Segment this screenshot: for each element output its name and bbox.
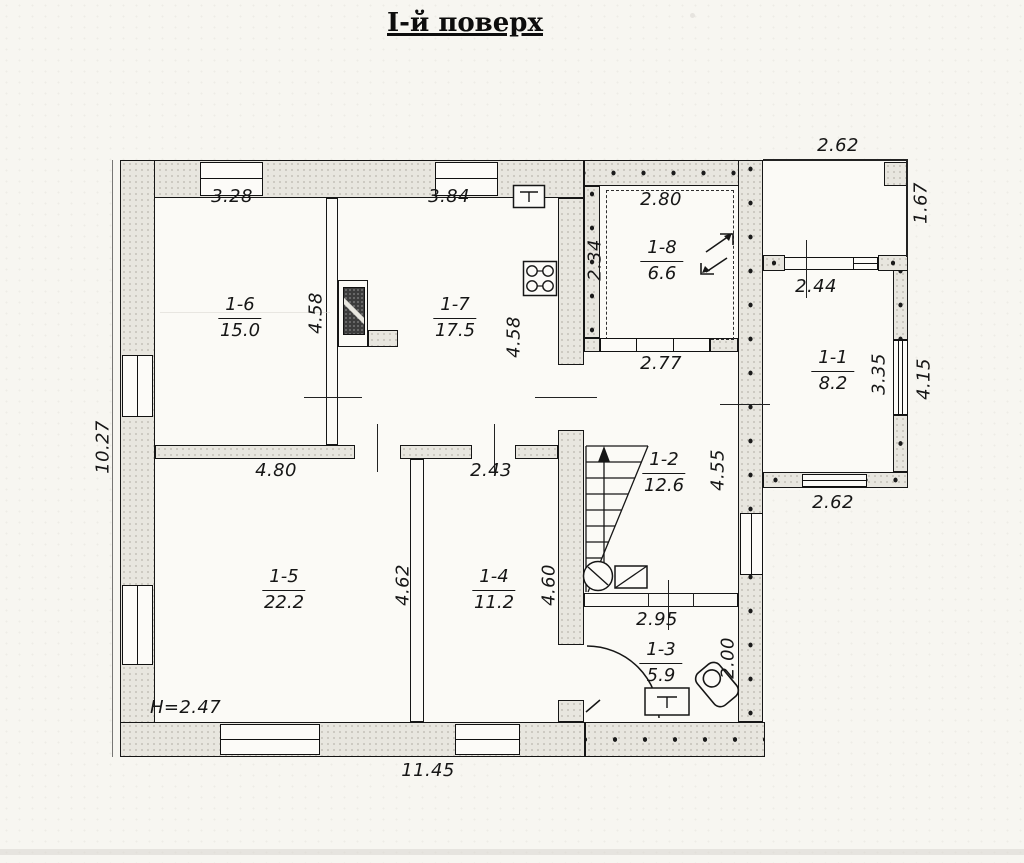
dim-label-room16-depth: 4.58	[306, 292, 327, 334]
partition-hall-bath	[584, 593, 738, 607]
wall-hall-upper	[558, 198, 584, 365]
dim-label-room14-width: 2.43	[470, 460, 512, 481]
ceiling-height-note: H=2.47	[150, 697, 221, 718]
wall-porch-bottom-b	[710, 338, 738, 352]
room-id: 1-4	[472, 566, 515, 591]
dim-label-bottom-total: 11.45	[401, 760, 455, 781]
window-bottom-room14	[455, 724, 520, 755]
window-bottom-room15	[220, 724, 320, 755]
dim-label-top-room17: 3.84	[428, 186, 470, 207]
room-area: 22.2	[262, 591, 305, 615]
room-area: 15.0	[218, 319, 261, 343]
room-area: 12.6	[642, 474, 685, 498]
room-id: 1-7	[433, 294, 476, 319]
wall-room11-right-a	[893, 270, 908, 340]
scan-band	[0, 849, 1024, 855]
room-area: 6.6	[640, 262, 683, 286]
room-label-1-7: 1-7 17.5	[433, 294, 476, 342]
dim-label-bath-depth: 2.00	[718, 637, 739, 679]
window-room11-bottom	[802, 474, 867, 487]
dim-label-room14-depth: 4.60	[539, 564, 560, 606]
dim-label-room17-depth: 4.58	[504, 316, 525, 358]
room-label-1-3: 1-3 5.9	[639, 639, 682, 687]
dim-label-top-room16: 3.28	[211, 186, 253, 207]
terrace-right-line	[906, 159, 908, 257]
terrace-top-line	[763, 159, 908, 161]
partition-divider	[648, 593, 649, 607]
wall-porch-bottom-a	[584, 338, 600, 352]
wall-room11-right-b	[893, 415, 908, 472]
room-label-1-5: 1-5 22.2	[262, 566, 305, 614]
dim-label-room11-door: 2.44	[795, 276, 837, 297]
wall-room11-top-a	[763, 255, 785, 271]
dim-label-room15-depth: 4.62	[393, 564, 414, 606]
tick-partition	[304, 397, 362, 398]
scan-speck	[690, 13, 695, 18]
chimney-flue	[343, 287, 365, 335]
wall-bottom-right	[585, 722, 765, 757]
dim-label-room11-bottom: 2.62	[812, 492, 854, 513]
partition-divider	[693, 593, 694, 607]
dim-label-room18-width: 2.80	[640, 189, 682, 210]
chimney-stub-wall	[368, 330, 398, 347]
tick-hall-door	[535, 397, 597, 398]
dim-label-hall-depth: 4.55	[708, 449, 729, 491]
dim-label-room11-depth-outer: 4.15	[914, 358, 935, 400]
partition-room16-17	[326, 198, 338, 445]
window-room11-right	[893, 340, 908, 415]
sink-icon	[512, 184, 546, 209]
window-room11-top	[853, 257, 878, 270]
wall-top-porch	[584, 160, 763, 186]
room-id: 1-3	[639, 639, 682, 664]
dim-label-room18-depth: 2.34	[585, 239, 606, 281]
room-id: 1-1	[811, 347, 854, 372]
equipment-box-icon	[613, 564, 649, 590]
floor-plan-page: І-й поверх	[0, 0, 1024, 863]
room-label-1-4: 1-4 11.2	[472, 566, 515, 614]
room-id: 1-8	[640, 237, 683, 262]
tick-right-wall	[720, 404, 770, 405]
wall-mid-c	[515, 445, 558, 459]
room-area: 11.2	[472, 591, 515, 615]
stove-icon	[522, 260, 558, 297]
dim-label-left-total: 10.27	[93, 420, 114, 474]
door-opening-room11	[785, 257, 853, 270]
wall-room11-top-b	[878, 255, 908, 271]
room-id: 1-6	[218, 294, 261, 319]
room-label-1-8: 1-8 6.6	[640, 237, 683, 285]
window-left-room15	[122, 585, 153, 665]
window-right-hall	[740, 513, 763, 575]
bath-sink-icon	[643, 686, 693, 718]
wall-hall-lower	[558, 430, 584, 645]
dim-label-terrace-depth: 1.67	[911, 182, 932, 224]
window-left-room16	[122, 355, 153, 417]
room-label-1-6: 1-6 15.0	[218, 294, 261, 342]
dim-label-room15-width: 4.80	[255, 460, 297, 481]
dim-label-room11-depth: 3.35	[869, 353, 890, 395]
page-title: І-й поверх	[387, 8, 543, 38]
dim-label-room18-bottom: 2.77	[640, 353, 682, 374]
room-id: 1-5	[262, 566, 305, 591]
boiler-icon	[580, 558, 616, 594]
opening-arrows-icon	[696, 228, 738, 280]
wall-hall-stub	[558, 700, 584, 722]
dim-label-terrace-width: 2.62	[817, 135, 859, 156]
dim-label-bath-width: 2.95	[636, 609, 678, 630]
tick-door-room15	[377, 424, 378, 472]
room-area: 5.9	[639, 664, 682, 688]
window-porch-bottom	[600, 338, 710, 352]
annex-floor	[763, 160, 908, 490]
room-area: 17.5	[433, 319, 476, 343]
room-label-1-2: 1-2 12.6	[642, 449, 685, 497]
wall-mid-b	[400, 445, 472, 459]
terrace-pillar	[884, 162, 908, 186]
room-area: 8.2	[811, 372, 854, 396]
wall-right-mid	[738, 160, 763, 722]
wall-mid-a	[155, 445, 355, 459]
room-label-1-1: 1-1 8.2	[811, 347, 854, 395]
wall-left	[120, 160, 155, 757]
room-id: 1-2	[642, 449, 685, 474]
